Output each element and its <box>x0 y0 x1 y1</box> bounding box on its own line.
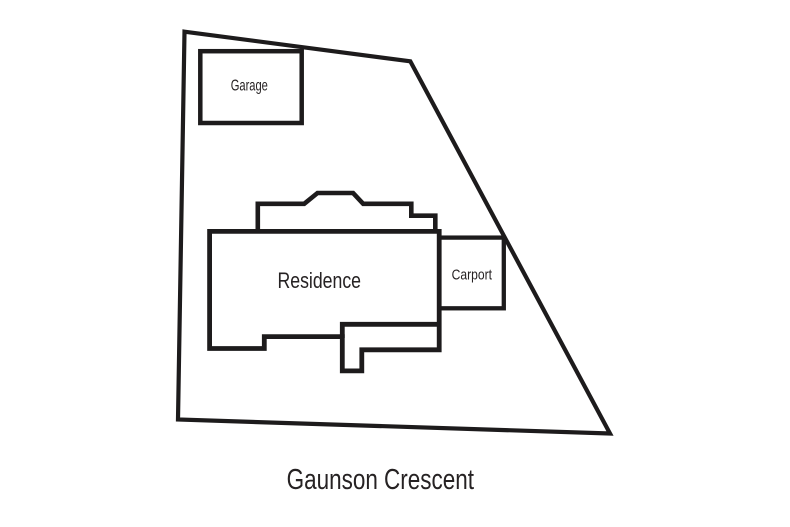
svg-text:Garage: Garage <box>231 77 268 94</box>
svg-text:Carport: Carport <box>452 267 493 284</box>
svg-text:Residence: Residence <box>278 268 362 293</box>
svg-text:Gaunson Crescent: Gaunson Crescent <box>287 464 474 496</box>
